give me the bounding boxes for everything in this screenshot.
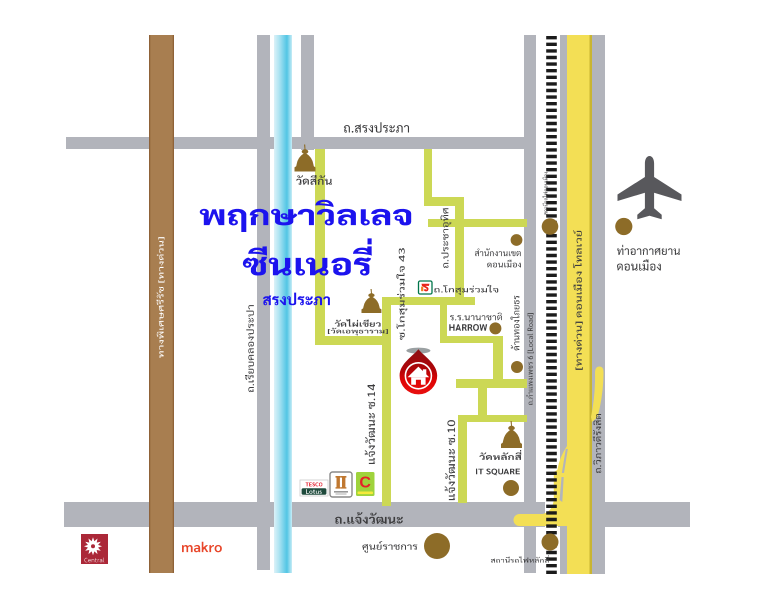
svg-text:C: C (359, 475, 371, 492)
